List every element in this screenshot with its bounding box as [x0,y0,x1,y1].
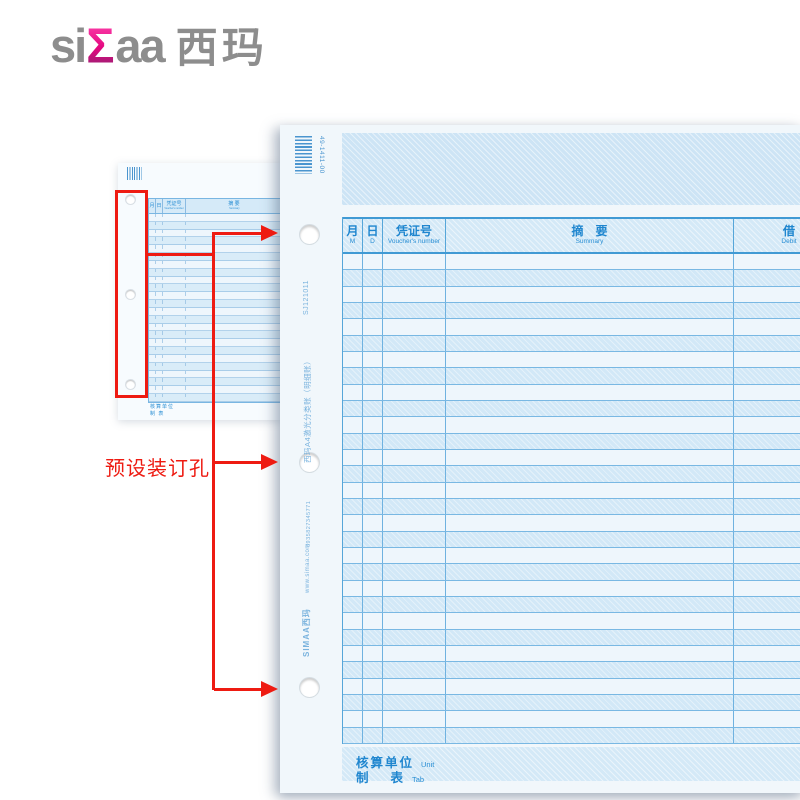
table-cell [343,679,363,694]
table-cell [363,483,383,498]
table-cell [383,385,446,400]
table-cell [343,597,363,612]
table-cell [446,499,734,514]
table-cell [734,597,800,612]
table-cell [446,695,734,710]
table-row [149,371,282,379]
table-cell [363,662,383,677]
table-row [149,339,282,347]
logo-text-chinese: 西玛 [176,27,268,69]
column-sublabel: Debit [781,238,796,246]
table-cell [149,304,156,307]
table-cell [446,728,734,743]
column-sublabel: M [350,238,355,246]
table-cell [734,532,800,547]
table-cell [363,630,383,645]
table-cell [186,261,282,264]
table-cell [163,308,186,311]
table-row [343,450,800,466]
table-cell [186,284,282,287]
table-cell [186,253,282,256]
table-cell [343,254,363,269]
table-cell [186,245,282,248]
table-cell [186,277,282,280]
table-cell [343,711,363,726]
table-cell [383,532,446,547]
table-cell [363,597,383,612]
binding-hole [126,380,135,389]
table-row [343,466,800,482]
table-cell [734,695,800,710]
table-cell [383,679,446,694]
table-cell [446,679,734,694]
table-cell [343,564,363,579]
table-cell [163,245,186,248]
table-cell [343,417,363,432]
table-cell [343,270,363,285]
table-cell [383,319,446,334]
table-cell [734,466,800,481]
column-label: 月 [149,204,154,209]
table-cell [163,269,186,272]
table-row [343,287,800,303]
table-cell [734,581,800,596]
table-cell [149,225,156,228]
barcode-label: 49-1411-00 [318,136,325,174]
table-row [343,548,800,564]
logo-text-si: si [50,22,85,69]
table-cell [186,230,282,233]
table-cell [383,434,446,449]
table-row [343,515,800,531]
stub-ean-number: 6935827345771 [306,501,312,547]
table-cell [163,355,186,358]
table-cell [734,385,800,400]
table-cell [163,222,186,225]
table-row [149,253,282,261]
table-cell [163,339,186,342]
table-cell [156,261,163,264]
arrow-icon [214,454,278,470]
table-cell [446,532,734,547]
table-cell [156,292,163,295]
column-label: 日 [366,225,378,238]
table-cell [156,363,163,366]
table-cell [446,515,734,530]
table-row [149,214,282,222]
table-row [343,532,800,548]
table-cell [363,287,383,302]
table-cell [163,378,186,381]
table-cell [343,532,363,547]
column-header-day: 日 D [363,219,383,252]
binding-hole [126,290,135,299]
stub-website: www.simaa.com [305,543,311,593]
column-label: 摘 要 [571,225,607,238]
table-cell [383,466,446,481]
table-cell [363,466,383,481]
table-cell [149,327,156,330]
table-cell [734,319,800,334]
table-cell [446,630,734,645]
column-label: 凭证号 [396,225,432,238]
table-row [343,597,800,613]
table-cell [383,336,446,351]
table-row [149,394,282,402]
table-row [343,564,800,580]
table-cell [163,261,186,264]
table-cell [186,339,282,342]
table-cell [363,385,383,400]
table-cell [734,646,800,661]
barcode-icon [127,167,142,180]
table-cell [156,277,163,280]
table-cell [383,581,446,596]
table-cell [149,249,156,252]
table-cell [446,483,734,498]
table-row [343,613,800,629]
table-row [149,222,282,230]
table-cell [186,214,282,217]
table-cell [163,331,186,334]
table-cell [734,483,800,498]
table-cell [149,288,156,291]
table-cell [446,352,734,367]
ledger-sheet: 49-1411-00 SJ121011 西玛A4激光分类账（明细账） 69358… [280,125,800,793]
table-cell [383,368,446,383]
table-cell [163,292,186,295]
table-row [149,378,282,386]
table-cell [156,386,163,389]
column-header-month: 月 [149,199,156,213]
table-row [149,300,282,308]
table-row [149,237,282,245]
column-header-voucher: 凭证号 Voucher's number [163,199,186,213]
table-cell [734,564,800,579]
table-row [343,385,800,401]
table-cell [446,662,734,677]
small-form-rows [149,214,282,402]
table-cell [163,284,186,287]
table-row [343,434,800,450]
table-cell [163,324,186,327]
table-cell [149,319,156,322]
table-cell [363,728,383,743]
table-row [149,324,282,332]
table-cell [186,347,282,350]
table-cell [383,613,446,628]
table-cell [446,466,734,481]
table-cell [446,319,734,334]
table-cell [383,352,446,367]
column-sublabel: Voucher's number [388,238,440,246]
table-cell [363,450,383,465]
table-cell [149,241,156,244]
stub-brand: SIMAA西玛 [301,608,312,657]
table-cell [446,564,734,579]
table-cell [343,483,363,498]
table-cell [156,347,163,350]
table-cell [186,269,282,272]
column-label: 月 [346,225,358,238]
arrow-head [261,454,278,470]
table-cell [163,316,186,319]
table-cell [363,711,383,726]
table-row [149,331,282,339]
table-row [149,347,282,355]
table-row [343,728,800,744]
table-cell [163,230,186,233]
table-cell [149,335,156,338]
table-cell [186,308,282,311]
table-cell [343,287,363,302]
table-cell [186,222,282,225]
table-cell [363,548,383,563]
table-cell [186,300,282,303]
table-row [343,711,800,727]
table-cell [149,366,156,369]
table-cell [363,368,383,383]
table-cell [446,417,734,432]
table-cell [734,303,800,318]
table-cell [343,515,363,530]
stub-product-title: 西玛A4激光分类账（明细账） [302,357,313,463]
table-row [343,679,800,695]
column-header-summary: 摘 要 Summary [186,199,282,213]
table-row [149,355,282,363]
table-cell [156,222,163,225]
table-cell [363,336,383,351]
table-cell [149,390,156,393]
stub-product-code: SJ121011 [303,280,310,315]
table-cell [156,237,163,240]
table-cell [363,401,383,416]
table-row [343,352,800,368]
table-cell [149,217,156,220]
table-cell [156,230,163,233]
table-cell [186,355,282,358]
table-cell [383,548,446,563]
table-cell [734,336,800,351]
table-cell [363,434,383,449]
table-cell [383,564,446,579]
table-cell [343,385,363,400]
unit-line: 核算单位 Unit [342,752,800,767]
table-cell [446,270,734,285]
table-cell [363,303,383,318]
column-header-month: 月 M [343,219,363,252]
table-row [343,417,800,433]
table-cell [343,662,363,677]
table-cell [156,339,163,342]
table-cell [383,270,446,285]
table-row [343,319,800,335]
table-cell [383,287,446,302]
table-cell [363,695,383,710]
table-cell [383,254,446,269]
table-cell [156,253,163,256]
table-cell [734,401,800,416]
table-cell [734,287,800,302]
small-form-table: 月 日 凭证号 Voucher's number 摘 要 Summary [148,198,283,403]
table-row [343,662,800,678]
table-cell [343,646,363,661]
table-cell [734,499,800,514]
table-cell [363,515,383,530]
column-header-summary: 摘 要 Summary [446,219,734,252]
table-cell [156,378,163,381]
logo-text-aa: aa [115,22,163,69]
table-cell [343,695,363,710]
table-row [149,308,282,316]
table-cell [343,434,363,449]
table-cell [343,450,363,465]
annotation-label: 预设装订孔 [100,452,210,481]
table-cell [186,237,282,240]
table-cell [186,371,282,374]
table-cell [383,499,446,514]
ledger-table: 月 M 日 D 凭证号 Voucher's number 摘 要 Summary… [342,217,800,744]
table-cell [446,434,734,449]
table-cell [149,272,156,275]
table-row [343,303,800,319]
table-row [343,646,800,662]
table-cell [383,401,446,416]
table-cell [363,319,383,334]
column-header-voucher: 凭证号 Voucher's number [383,219,446,252]
table-cell [149,280,156,283]
table-cell [734,254,800,269]
table-row [149,269,282,277]
table-cell [383,728,446,743]
table-cell [734,548,800,563]
logo-sigma-icon: Σ [86,21,114,70]
table-cell [149,374,156,377]
table-cell [343,613,363,628]
simaa-logo: si Σ aa 西玛 [50,22,268,69]
table-cell [343,352,363,367]
table-cell [343,401,363,416]
table-cell [446,711,734,726]
ledger-rows [343,254,800,744]
table-cell [186,386,282,389]
table-cell [383,417,446,432]
table-cell [156,284,163,287]
table-cell [163,363,186,366]
arrow-shaft [214,688,266,691]
table-cell [186,363,282,366]
table-cell [383,630,446,645]
table-cell [363,532,383,547]
column-label: 借 [783,225,795,238]
table-cell [446,581,734,596]
table-row [149,245,282,253]
tab-label: 制 表 [356,767,405,786]
column-header-debit: 借 Debit [734,219,800,252]
table-cell [149,382,156,385]
table-cell [163,277,186,280]
column-sublabel: Voucher's number [164,207,183,209]
table-row [149,277,282,285]
table-cell [363,417,383,432]
table-cell [156,355,163,358]
table-row [343,499,800,515]
table-row [149,284,282,292]
column-sublabel: D [370,238,375,246]
table-cell [343,548,363,563]
table-cell [186,331,282,334]
column-sublabel: Summary [229,207,239,209]
table-row [343,336,800,352]
table-cell [149,358,156,361]
table-cell [446,368,734,383]
column-sublabel: Summary [576,238,604,246]
table-cell [383,303,446,318]
table-cell [734,368,800,383]
tab-sublabel: Tab [412,775,424,784]
table-cell [163,253,186,256]
table-cell [149,296,156,299]
table-cell [363,564,383,579]
ledger-header-row: 月 M 日 D 凭证号 Voucher's number 摘 要 Summary… [343,217,800,254]
table-cell [446,613,734,628]
table-cell [446,597,734,612]
table-cell [163,214,186,217]
table-cell [446,548,734,563]
binding-hole [300,678,319,697]
binding-hole [126,195,135,204]
table-cell [734,515,800,530]
table-cell [446,336,734,351]
barcode-icon [295,136,312,174]
table-cell [383,646,446,661]
table-cell [343,319,363,334]
table-cell [363,581,383,596]
table-cell [186,292,282,295]
table-cell [156,214,163,217]
table-cell [149,257,156,260]
small-form-header-row: 月 日 凭证号 Voucher's number 摘 要 Summary [149,199,282,214]
table-row [343,270,800,286]
table-cell [383,450,446,465]
table-cell [186,378,282,381]
table-cell [156,394,163,397]
table-cell [734,711,800,726]
table-cell [149,264,156,267]
table-cell [149,397,156,400]
table-cell [446,401,734,416]
table-cell [163,300,186,303]
ledger-footer: 核算单位 Unit 制 表 Tab [342,747,800,781]
table-cell [363,270,383,285]
table-cell [446,646,734,661]
unit-label: 核算单位 [150,404,174,411]
table-cell [163,386,186,389]
table-cell [363,352,383,367]
table-cell [163,371,186,374]
table-cell [186,324,282,327]
table-cell [383,695,446,710]
table-cell [186,316,282,319]
table-cell [363,646,383,661]
table-cell [734,450,800,465]
table-cell [734,613,800,628]
table-cell [734,662,800,677]
table-cell [734,679,800,694]
table-cell [343,630,363,645]
table-cell [383,515,446,530]
table-row [149,230,282,238]
